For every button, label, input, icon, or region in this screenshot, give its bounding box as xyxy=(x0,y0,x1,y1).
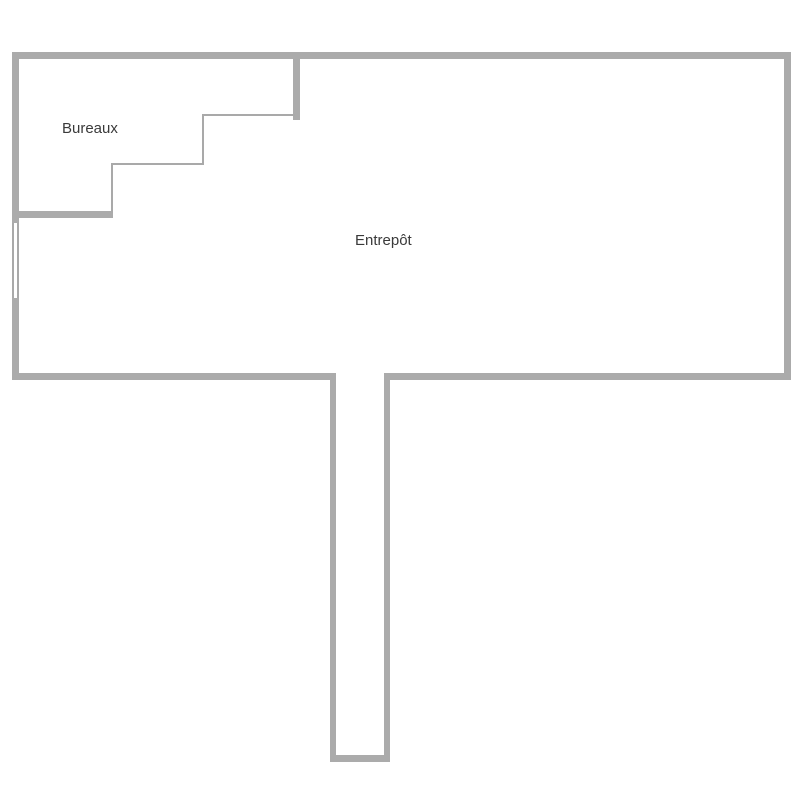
wall-left-upper xyxy=(12,52,19,223)
partition-step-horizontal-upper xyxy=(202,114,295,116)
window-left-wall xyxy=(12,223,19,298)
wall-bottom-left-segment xyxy=(12,373,336,380)
wall-top xyxy=(12,52,791,59)
room-label-entrepot: Entrepôt xyxy=(355,232,412,250)
bureaux-partition-bottom-wall xyxy=(12,211,113,218)
corridor-wall-bottom-cap xyxy=(330,755,390,762)
wall-bottom-right-segment xyxy=(384,373,791,380)
floorplan-canvas: Bureaux Entrepôt xyxy=(0,0,804,800)
corridor-wall-left xyxy=(330,373,336,762)
room-label-bureaux: Bureaux xyxy=(62,120,118,138)
wall-left-lower xyxy=(12,298,19,380)
wall-right xyxy=(784,52,791,380)
partition-step-vertical-upper xyxy=(202,114,204,165)
partition-step-horizontal-lower xyxy=(111,163,204,165)
bureaux-partition-right-wall xyxy=(293,52,300,120)
corridor-wall-right xyxy=(384,373,390,762)
partition-step-vertical-lower xyxy=(111,163,113,213)
